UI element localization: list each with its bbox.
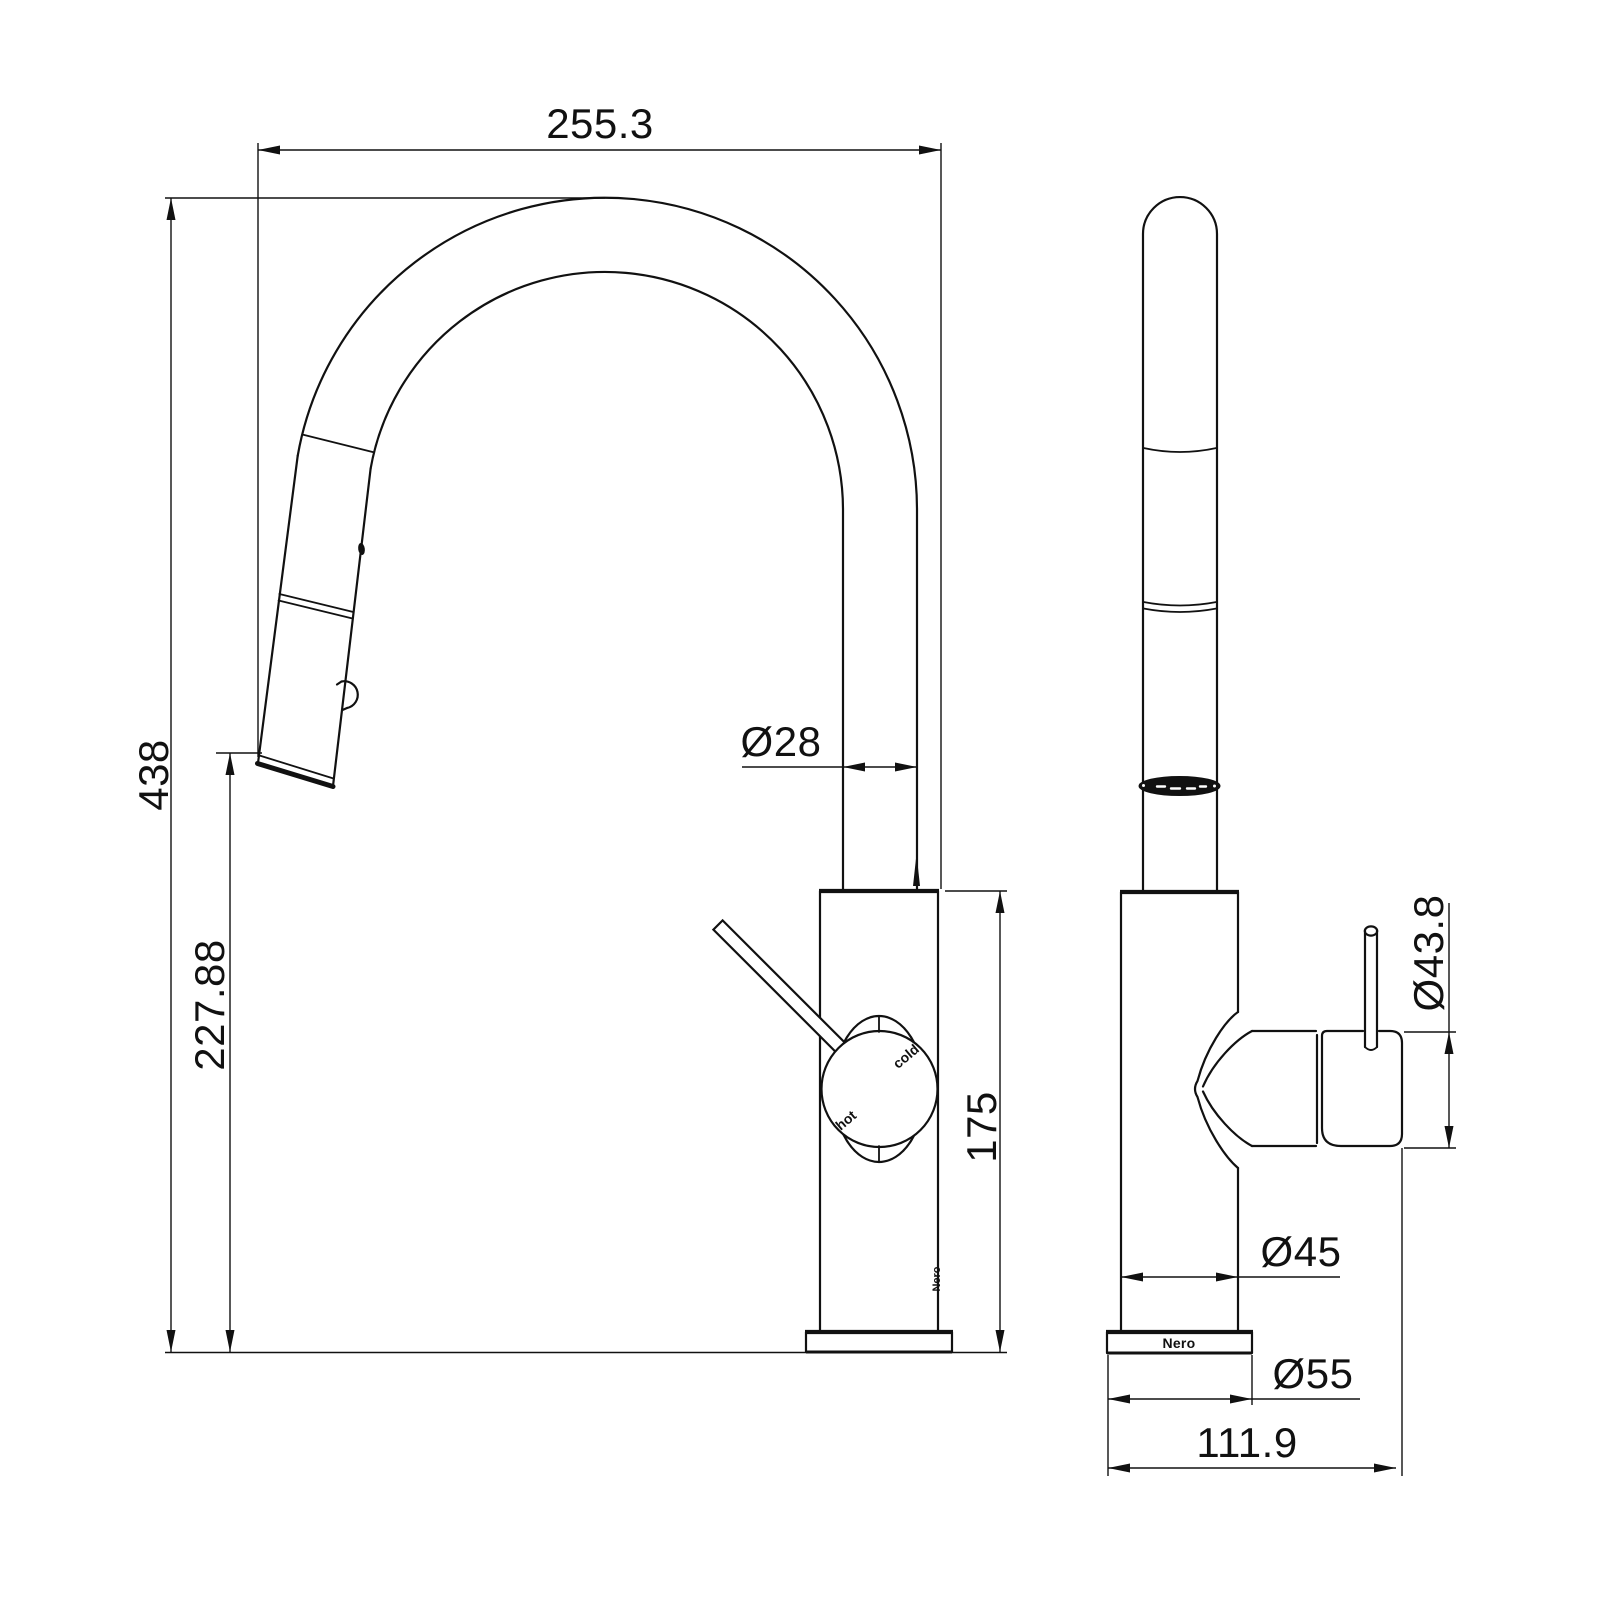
- dim-spout-diameter: Ø28: [741, 718, 917, 772]
- dim-outlet-height: 227.88: [186, 753, 262, 1352]
- handle-connector: [1252, 1031, 1316, 1146]
- side-view: Nero: [1106, 197, 1402, 1353]
- body-side-brand-logo: Nero: [931, 1266, 943, 1291]
- technical-drawing-canvas: Nero hot cold: [0, 0, 1600, 1600]
- faucet-dimension-drawing: Nero hot cold: [0, 0, 1600, 1600]
- dim-handle-diameter-text: Ø43.8: [1405, 895, 1452, 1012]
- spray-pin-dot: [358, 543, 365, 555]
- spout-outer-arc: [298, 198, 917, 891]
- side-lever-rod-bottom: [1365, 1047, 1377, 1050]
- aerator-dot-right: [1213, 785, 1216, 788]
- dim-overall-depth: 111.9: [1108, 1148, 1402, 1476]
- front-view: Nero hot cold: [165, 198, 1007, 1353]
- side-lever-rod: [1365, 931, 1377, 1047]
- dim-body-diameter: Ø45: [1121, 1228, 1341, 1282]
- base-flange-sides: [806, 1332, 952, 1352]
- spray-head-right-edge: [333, 469, 371, 786]
- dim-outlet-height-text: 227.88: [186, 939, 233, 1070]
- side-tube-seam-1: [1144, 448, 1217, 452]
- spray-head-left-edge: [258, 456, 298, 763]
- handle-lever: [713, 920, 849, 1056]
- side-lever-rod-cap: [1365, 926, 1377, 935]
- side-tube-seam-2b: [1144, 609, 1217, 613]
- handle-grip: [1322, 1031, 1402, 1146]
- dim-overall-reach-text: 255.3: [546, 100, 654, 147]
- dimensions: 255.3 438 227.88 Ø28 175: [130, 100, 1456, 1476]
- dim-base-diameter-text: Ø55: [1273, 1350, 1354, 1397]
- dim-overall-height: 438: [130, 198, 605, 1352]
- aerator-dot-left: [1142, 784, 1145, 787]
- spray-toggle-button: [337, 681, 358, 710]
- dim-handle-diameter: Ø43.8: [1404, 895, 1456, 1148]
- base-brand-label: Nero: [1162, 1335, 1195, 1351]
- aerator-outlet: [1139, 777, 1220, 796]
- dim-body-height-text: 175: [958, 1091, 1005, 1163]
- spout-inner-arc: [371, 272, 843, 891]
- handle-cone-outer: [1195, 1012, 1238, 1168]
- dim-spout-diameter-text: Ø28: [741, 718, 822, 765]
- pipe-edge-arrow-detail: [913, 854, 920, 886]
- dim-body-diameter-text: Ø45: [1261, 1228, 1342, 1275]
- dim-overall-depth-text: 111.9: [1196, 1419, 1297, 1466]
- dim-overall-reach: 255.3: [258, 100, 941, 889]
- dim-body-height: 175: [945, 891, 1007, 1352]
- dim-overall-height-text: 438: [130, 739, 177, 811]
- spray-head-attach-seam: [302, 435, 374, 453]
- side-tube-seam-2a: [1144, 602, 1217, 606]
